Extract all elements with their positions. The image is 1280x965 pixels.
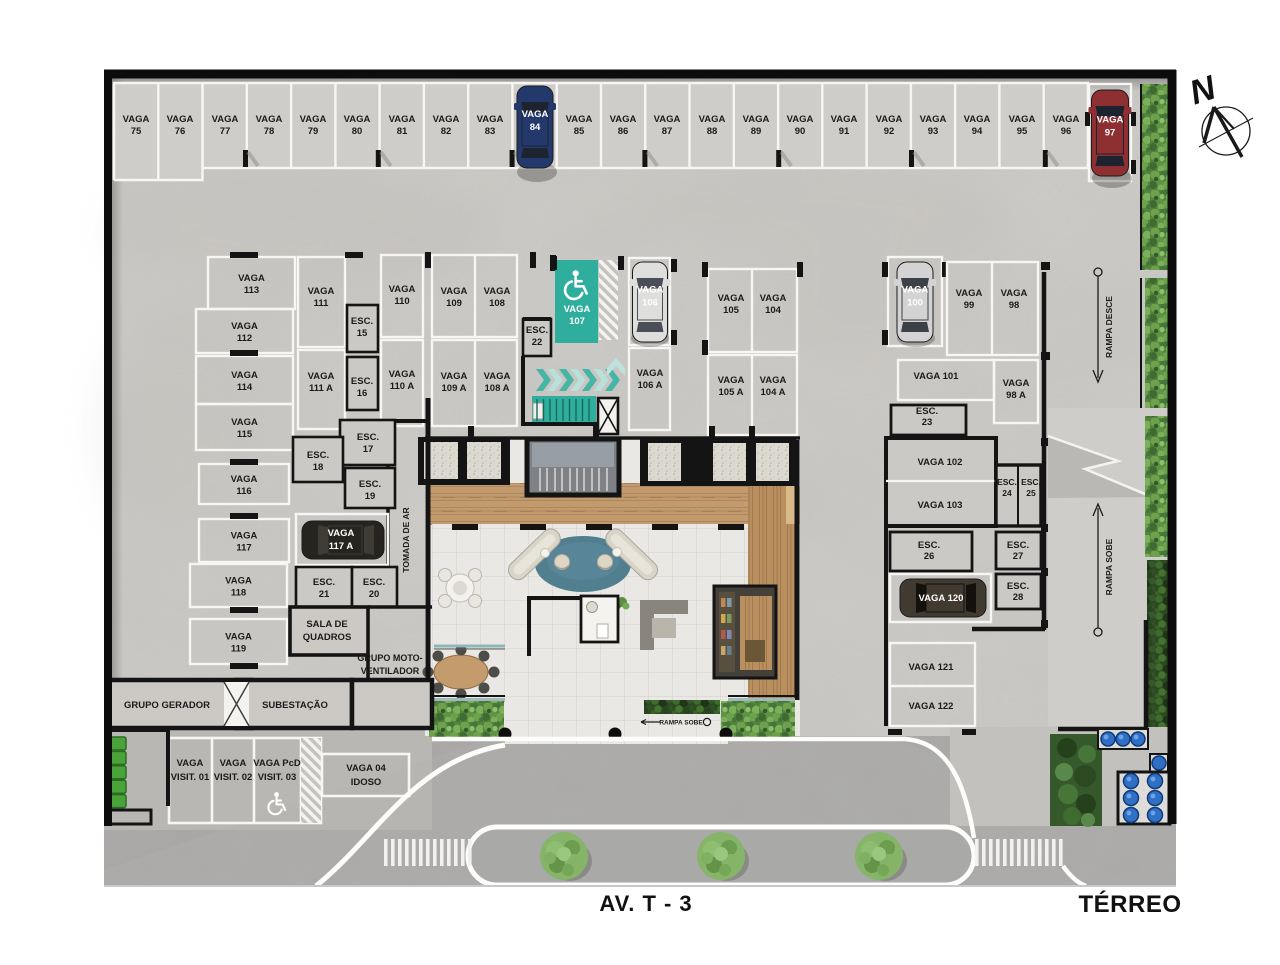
svg-text:RAMPA SOBE: RAMPA SOBE <box>1104 538 1114 595</box>
svg-text:117: 117 <box>236 543 251 554</box>
svg-text:117 A: 117 A <box>329 541 354 552</box>
svg-text:86: 86 <box>618 126 629 137</box>
svg-text:VAGA: VAGA <box>231 370 258 381</box>
svg-text:78: 78 <box>264 126 275 137</box>
svg-text:ESC.: ESC. <box>526 325 548 336</box>
svg-text:90: 90 <box>795 126 806 137</box>
svg-text:VAGA: VAGA <box>220 758 247 769</box>
svg-text:AV. T - 3: AV. T - 3 <box>599 891 692 916</box>
svg-text:98 A: 98 A <box>1006 390 1026 401</box>
svg-text:VAGA: VAGA <box>484 286 511 297</box>
svg-text:80: 80 <box>352 126 363 137</box>
svg-text:ESC.: ESC. <box>1021 477 1041 487</box>
svg-text:RAMPA SOBE: RAMPA SOBE <box>659 720 703 727</box>
svg-text:VAGA: VAGA <box>225 632 252 643</box>
svg-text:ESC.: ESC. <box>997 477 1017 487</box>
svg-text:VAGA: VAGA <box>484 371 511 382</box>
svg-text:106 A: 106 A <box>638 380 663 391</box>
svg-text:VAGA: VAGA <box>328 528 355 539</box>
svg-text:VAGA: VAGA <box>1053 114 1080 125</box>
svg-text:99: 99 <box>964 300 975 311</box>
svg-text:81: 81 <box>397 126 408 137</box>
svg-text:112: 112 <box>237 333 252 344</box>
svg-text:VAGA: VAGA <box>441 371 468 382</box>
svg-text:VAGA: VAGA <box>231 474 258 485</box>
svg-text:79: 79 <box>308 126 319 137</box>
svg-text:104: 104 <box>765 305 782 316</box>
svg-text:TOMADA DE AR: TOMADA DE AR <box>401 507 411 572</box>
svg-text:ESC.: ESC. <box>357 432 379 443</box>
svg-text:VAGA: VAGA <box>831 114 858 125</box>
svg-text:TÉRREO: TÉRREO <box>1078 890 1181 918</box>
svg-text:96: 96 <box>1061 126 1072 137</box>
svg-text:110 A: 110 A <box>390 381 415 392</box>
svg-text:ESC.: ESC. <box>359 479 381 490</box>
svg-text:VAGA: VAGA <box>231 531 258 542</box>
svg-text:RAMPA DESCE: RAMPA DESCE <box>1104 296 1114 358</box>
svg-text:19: 19 <box>365 491 376 502</box>
svg-text:108: 108 <box>489 298 505 309</box>
svg-text:105: 105 <box>723 305 740 316</box>
svg-text:83: 83 <box>485 126 496 137</box>
svg-text:VAGA 04: VAGA 04 <box>346 763 386 774</box>
svg-text:IDOSO: IDOSO <box>351 777 382 788</box>
svg-text:VAGA: VAGA <box>876 114 903 125</box>
svg-text:VAGA: VAGA <box>238 273 265 284</box>
svg-text:VAGA: VAGA <box>654 114 681 125</box>
svg-text:98: 98 <box>1009 300 1020 311</box>
svg-text:ESC.: ESC. <box>307 450 329 461</box>
svg-text:VAGA: VAGA <box>1003 378 1030 389</box>
svg-text:111 A: 111 A <box>309 383 333 394</box>
svg-text:111: 111 <box>314 298 330 309</box>
svg-text:VAGA 120: VAGA 120 <box>919 593 964 604</box>
svg-text:VAGA 101: VAGA 101 <box>914 371 960 382</box>
svg-text:88: 88 <box>707 126 718 137</box>
svg-text:82: 82 <box>441 126 452 137</box>
svg-text:16: 16 <box>357 388 368 399</box>
svg-text:24: 24 <box>1002 488 1012 498</box>
svg-text:77: 77 <box>220 126 231 137</box>
svg-text:VAGA: VAGA <box>610 114 637 125</box>
svg-text:114: 114 <box>237 382 253 393</box>
svg-text:93: 93 <box>928 126 939 137</box>
svg-text:VAGA: VAGA <box>433 114 460 125</box>
svg-text:VAGA: VAGA <box>760 293 787 304</box>
svg-text:VAGA: VAGA <box>522 109 549 120</box>
svg-text:VAGA PcD: VAGA PcD <box>253 758 301 769</box>
svg-text:VISIT. 02: VISIT. 02 <box>214 772 253 783</box>
svg-text:VAGA: VAGA <box>566 114 593 125</box>
svg-text:VAGA: VAGA <box>743 114 770 125</box>
svg-text:108 A: 108 A <box>485 383 510 394</box>
svg-text:116: 116 <box>236 486 251 497</box>
svg-text:VISIT. 03: VISIT. 03 <box>258 772 297 783</box>
svg-text:VAGA: VAGA <box>1001 288 1028 299</box>
svg-text:ESC.: ESC. <box>351 316 373 327</box>
svg-text:ESC.: ESC. <box>351 376 373 387</box>
svg-text:SUBESTAÇÃO: SUBESTAÇÃO <box>262 700 328 711</box>
svg-text:109 A: 109 A <box>442 383 467 394</box>
svg-text:VAGA: VAGA <box>956 288 983 299</box>
svg-text:85: 85 <box>574 126 585 137</box>
svg-text:VAGA: VAGA <box>760 375 787 386</box>
svg-text:GRUPO MOTO-: GRUPO MOTO- <box>357 653 422 663</box>
svg-text:VAGA: VAGA <box>389 114 416 125</box>
svg-text:VAGA: VAGA <box>637 368 664 379</box>
svg-text:97: 97 <box>1105 128 1116 139</box>
svg-text:91: 91 <box>839 126 850 137</box>
svg-text:VAGA: VAGA <box>637 284 664 295</box>
svg-text:VAGA 121: VAGA 121 <box>909 662 955 673</box>
svg-text:ESC.: ESC. <box>363 577 385 588</box>
svg-text:ESC.: ESC. <box>1007 540 1029 551</box>
svg-text:VAGA: VAGA <box>718 293 745 304</box>
svg-text:VAGA: VAGA <box>300 114 327 125</box>
svg-text:VAGA: VAGA <box>231 417 258 428</box>
svg-text:VAGA: VAGA <box>787 114 814 125</box>
svg-text:VAGA: VAGA <box>1009 114 1036 125</box>
svg-text:110: 110 <box>394 296 409 307</box>
svg-text:VAGA 103: VAGA 103 <box>918 500 963 511</box>
svg-text:VAGA: VAGA <box>1097 115 1124 126</box>
svg-text:15: 15 <box>357 328 368 339</box>
svg-text:118: 118 <box>231 588 246 599</box>
svg-text:20: 20 <box>369 589 380 600</box>
svg-text:VAGA: VAGA <box>167 114 194 125</box>
svg-text:21: 21 <box>319 589 330 600</box>
svg-text:ESC.: ESC. <box>916 406 938 417</box>
svg-text:109: 109 <box>446 298 462 309</box>
svg-text:VAGA: VAGA <box>389 369 416 380</box>
svg-text:23: 23 <box>922 417 933 428</box>
svg-text:106: 106 <box>642 297 658 308</box>
svg-text:VAGA: VAGA <box>477 114 504 125</box>
svg-text:87: 87 <box>662 126 673 137</box>
svg-text:VAGA: VAGA <box>389 284 416 295</box>
svg-text:113: 113 <box>244 285 259 296</box>
svg-text:GRUPO GERADOR: GRUPO GERADOR <box>124 700 210 711</box>
svg-text:VAGA: VAGA <box>256 114 283 125</box>
svg-text:VAGA: VAGA <box>902 284 929 295</box>
svg-text:100: 100 <box>907 297 923 308</box>
svg-text:VAGA: VAGA <box>699 114 726 125</box>
svg-text:17: 17 <box>363 444 374 455</box>
svg-text:VAGA: VAGA <box>920 114 947 125</box>
svg-text:SALA DE: SALA DE <box>306 619 347 630</box>
svg-text:75: 75 <box>131 126 142 137</box>
svg-text:84: 84 <box>530 122 541 133</box>
svg-text:22: 22 <box>532 337 543 348</box>
svg-text:104 A: 104 A <box>761 387 786 398</box>
svg-text:26: 26 <box>924 551 935 562</box>
svg-text:VAGA: VAGA <box>177 758 204 769</box>
svg-text:ESC.: ESC. <box>1007 581 1029 592</box>
svg-text:89: 89 <box>751 126 762 137</box>
svg-text:92: 92 <box>884 126 895 137</box>
svg-text:107: 107 <box>569 316 585 327</box>
svg-text:ESC.: ESC. <box>918 540 940 551</box>
svg-text:VAGA: VAGA <box>225 576 252 587</box>
svg-text:VAGA: VAGA <box>344 114 371 125</box>
svg-text:VAGA: VAGA <box>308 286 335 297</box>
svg-text:76: 76 <box>175 126 186 137</box>
svg-text:95: 95 <box>1017 126 1028 137</box>
svg-text:119: 119 <box>231 644 246 655</box>
svg-text:VAGA: VAGA <box>308 371 335 382</box>
svg-text:VAGA 122: VAGA 122 <box>909 701 954 712</box>
svg-text:VISIT. 01: VISIT. 01 <box>171 772 210 783</box>
svg-text:25: 25 <box>1026 488 1036 498</box>
svg-text:VAGA: VAGA <box>964 114 991 125</box>
svg-text:VAGA: VAGA <box>564 304 591 315</box>
svg-text:ESC.: ESC. <box>313 577 335 588</box>
svg-text:VAGA 102: VAGA 102 <box>918 457 963 468</box>
svg-text:VAGA: VAGA <box>231 321 258 332</box>
svg-text:VAGA: VAGA <box>123 114 150 125</box>
svg-text:115: 115 <box>237 429 253 440</box>
svg-text:27: 27 <box>1013 551 1024 562</box>
svg-text:QUADROS: QUADROS <box>303 632 352 643</box>
svg-text:105 A: 105 A <box>719 387 744 398</box>
svg-text:28: 28 <box>1013 592 1024 603</box>
svg-text:VAGA: VAGA <box>718 375 745 386</box>
svg-text:VENTILADOR: VENTILADOR <box>361 666 420 676</box>
svg-text:94: 94 <box>972 126 983 137</box>
svg-text:VAGA: VAGA <box>212 114 239 125</box>
svg-text:VAGA: VAGA <box>441 286 468 297</box>
svg-text:18: 18 <box>313 462 324 473</box>
